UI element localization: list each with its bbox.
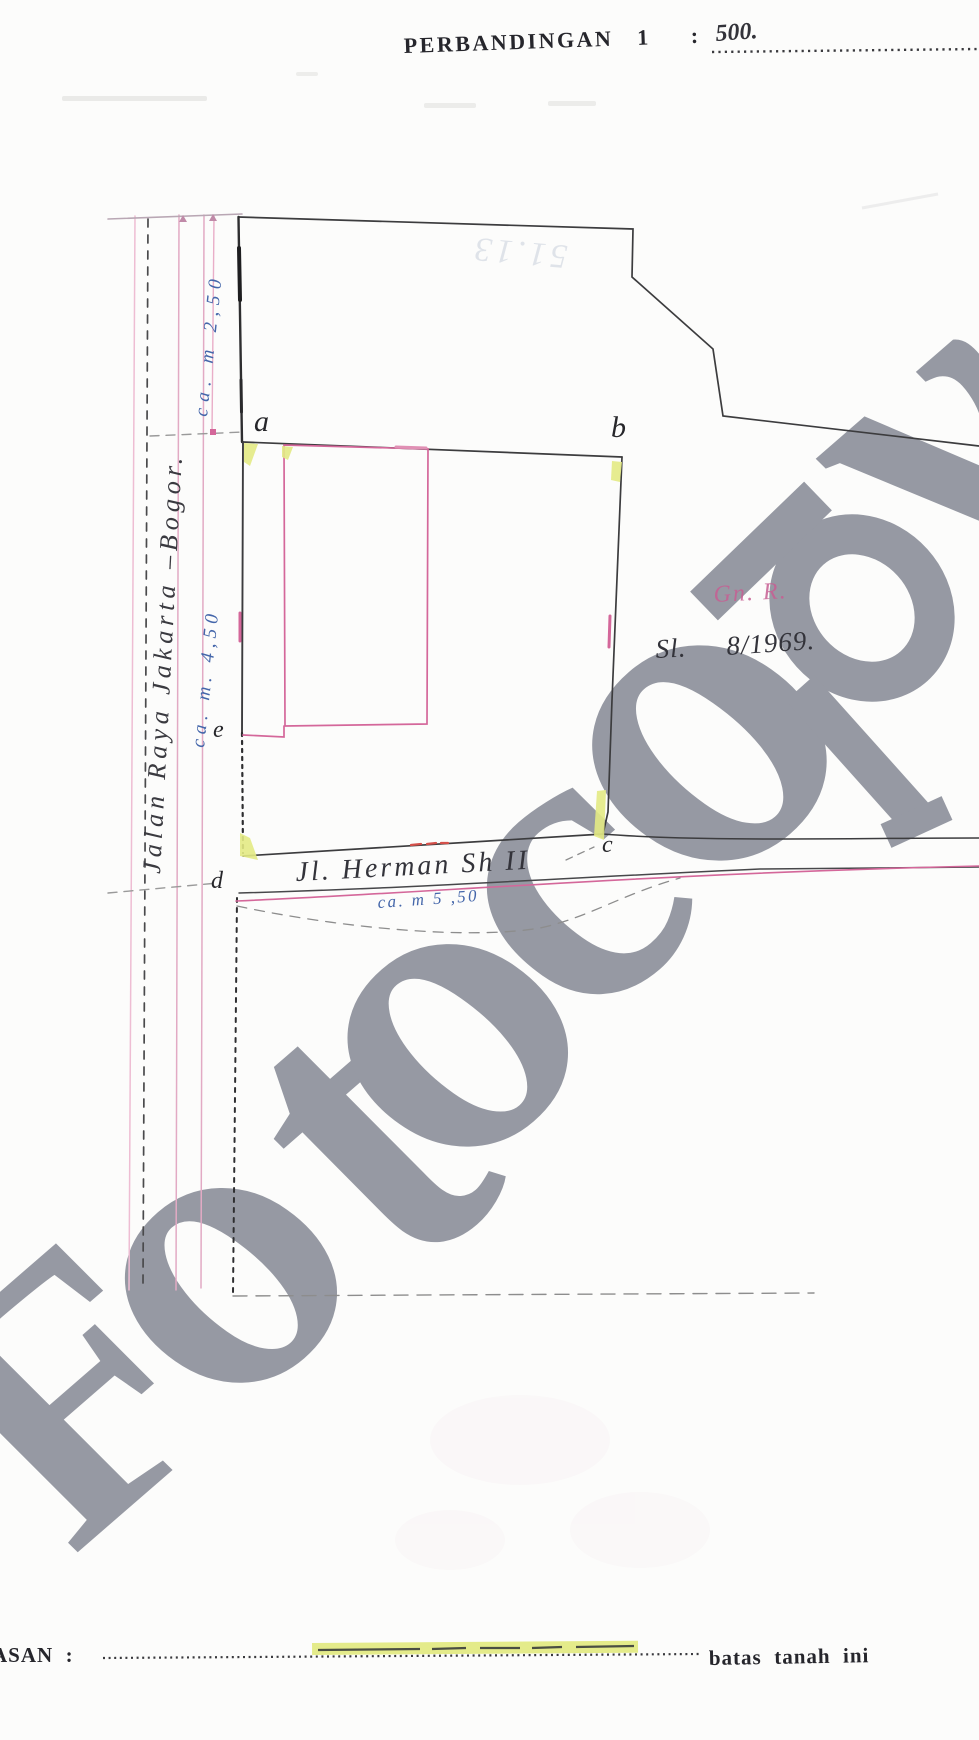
svg-text:e: e xyxy=(213,717,224,743)
svg-text:500.: 500. xyxy=(715,18,759,47)
svg-text:8/1969.: 8/1969. xyxy=(725,625,816,661)
svg-text:a: a xyxy=(254,405,269,438)
svg-text:b: b xyxy=(611,411,626,444)
svg-text:d: d xyxy=(211,868,224,894)
svg-text:Sl.: Sl. xyxy=(655,632,687,664)
svg-text:ASAN :: ASAN : xyxy=(0,1643,74,1667)
svg-text:Gn. R.: Gn. R. xyxy=(713,578,788,608)
svg-text:batas tanah ini: batas tanah ini xyxy=(709,1643,870,1670)
svg-text:c: c xyxy=(602,832,613,858)
